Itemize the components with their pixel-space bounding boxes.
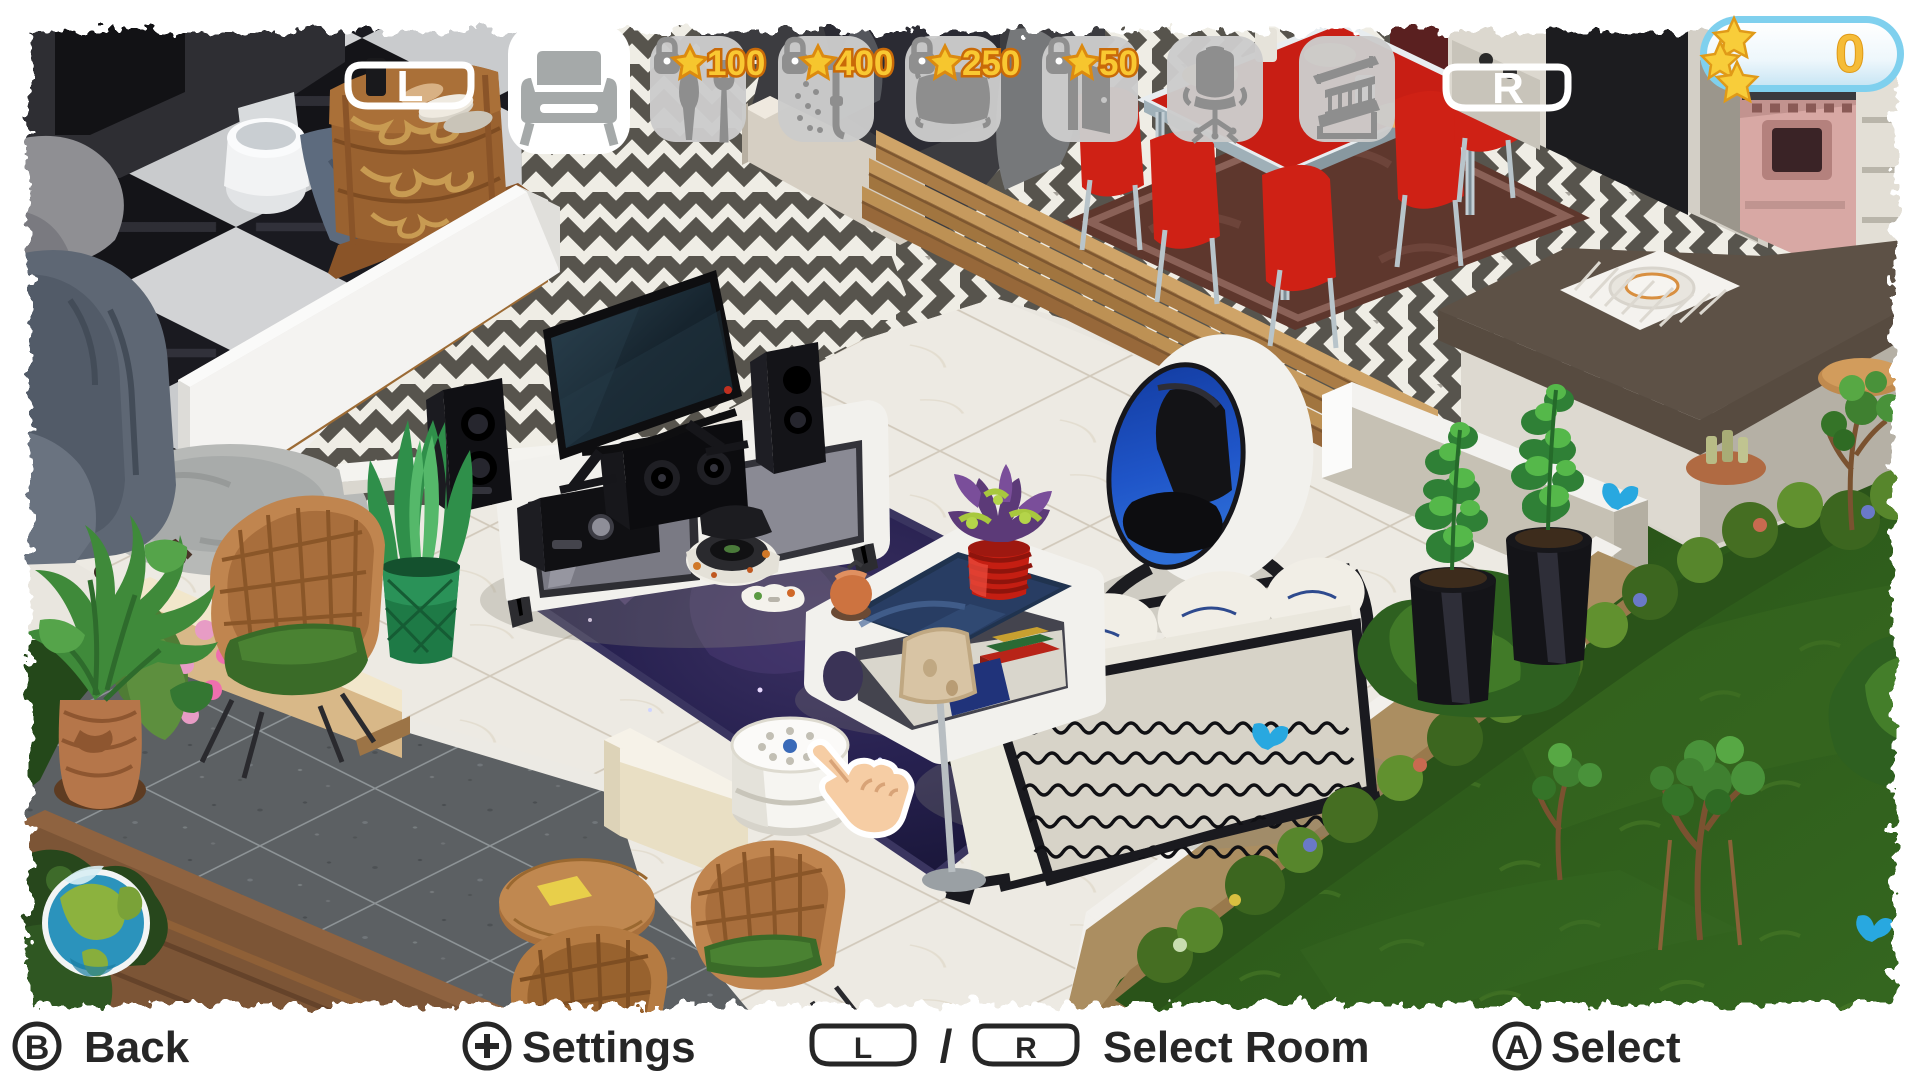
svg-text:250: 250 xyxy=(962,44,1020,83)
svg-text:R: R xyxy=(1015,1032,1037,1065)
svg-text:100: 100 xyxy=(707,44,765,83)
svg-text:Settings: Settings xyxy=(522,1023,696,1072)
svg-text:50: 50 xyxy=(1099,44,1138,83)
svg-text:R: R xyxy=(1492,64,1524,113)
svg-text:Select: Select xyxy=(1551,1023,1681,1072)
svg-text:Back: Back xyxy=(84,1023,190,1072)
svg-text:0: 0 xyxy=(1835,24,1865,84)
svg-text:A: A xyxy=(1505,1029,1530,1067)
svg-text:400: 400 xyxy=(835,44,893,83)
svg-text:L: L xyxy=(854,1032,872,1065)
svg-text:L: L xyxy=(397,62,424,111)
svg-text:Select Room: Select Room xyxy=(1103,1023,1370,1072)
svg-text:/: / xyxy=(940,1020,953,1072)
svg-text:B: B xyxy=(25,1029,50,1067)
